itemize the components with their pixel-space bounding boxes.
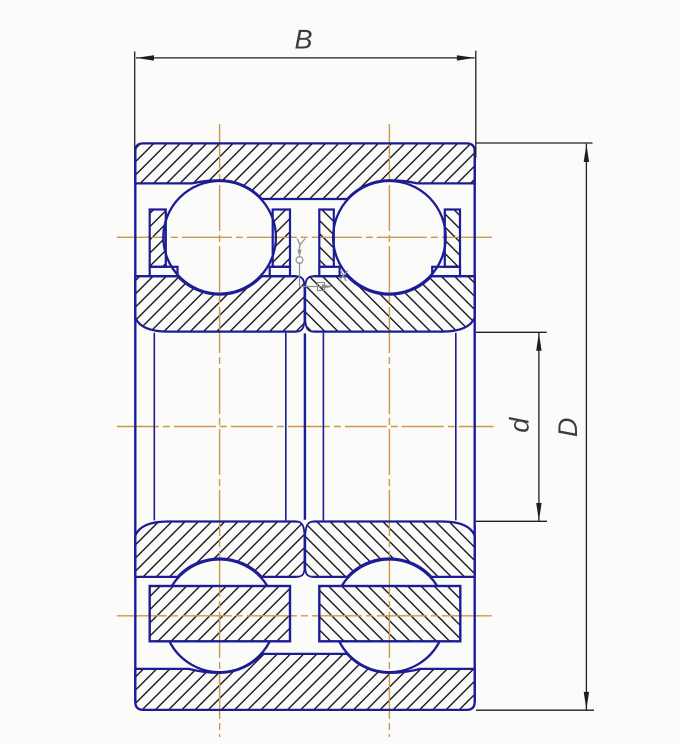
- svg-text:B: B: [294, 25, 312, 55]
- svg-text:Y: Y: [295, 236, 306, 253]
- svg-text:d: d: [505, 417, 535, 433]
- svg-text:D: D: [553, 418, 583, 438]
- svg-text:X: X: [337, 268, 349, 285]
